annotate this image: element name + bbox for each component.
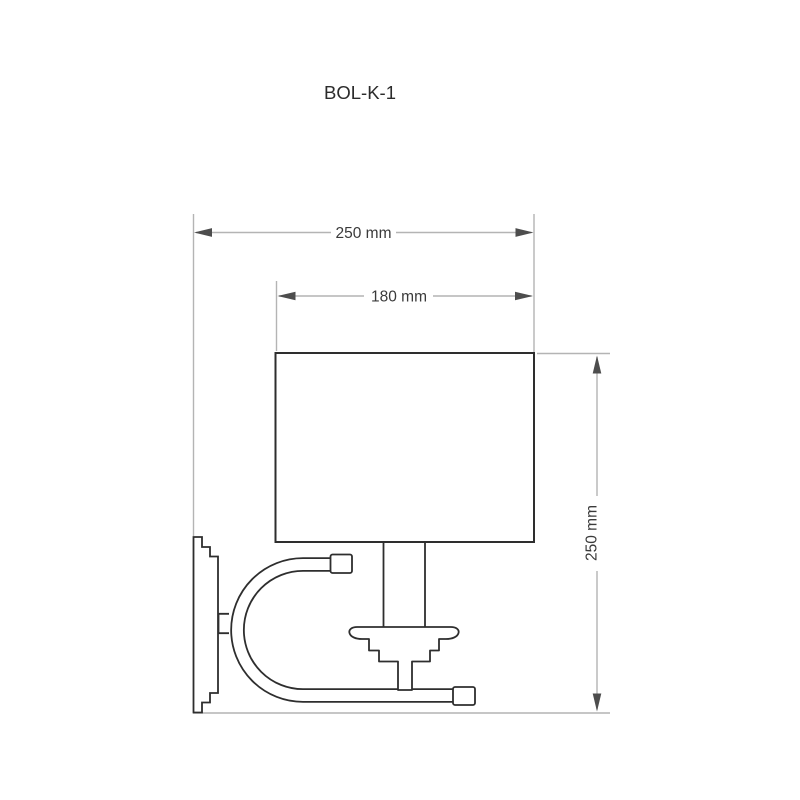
sconce-drawing — [194, 353, 535, 713]
product-code-label: BOL-K-1 — [324, 82, 396, 103]
overall-width-value: 250 mm — [336, 225, 392, 242]
arm-finial-top — [331, 555, 353, 574]
bobeche — [349, 627, 458, 690]
dimension-shade-width: 180 mm — [277, 281, 534, 351]
arrow-down-icon — [593, 694, 602, 712]
lamp-shade — [276, 353, 535, 542]
overall-height-value: 250 mm — [584, 505, 601, 561]
wall-plate — [194, 537, 219, 713]
arrow-right-icon — [515, 292, 533, 301]
arrow-left-icon — [278, 292, 296, 301]
wall-connector — [219, 614, 230, 633]
arrow-up-icon — [593, 356, 602, 374]
arm-finial-bottom — [453, 687, 475, 705]
wall-sconce-technical-drawing: BOL-K-1 250 mm 180 mm — [0, 0, 800, 800]
technical-drawing-canvas: BOL-K-1 250 mm 180 mm — [0, 0, 800, 800]
shade-width-value: 180 mm — [371, 289, 427, 306]
arrow-left-icon — [194, 228, 212, 237]
arrow-right-icon — [516, 228, 534, 237]
